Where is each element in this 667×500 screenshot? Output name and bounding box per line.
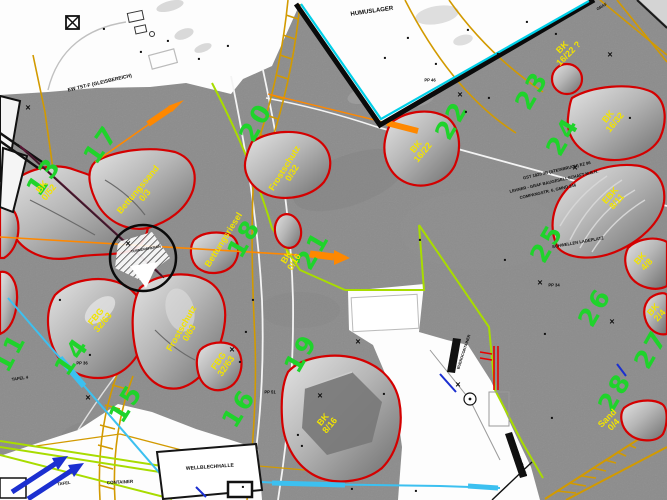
- site-plan-svg: [0, 0, 667, 500]
- stockpile-outline: [568, 86, 665, 160]
- stockpile-outline: [621, 401, 666, 441]
- stockpile-outline: [197, 343, 242, 391]
- site-plan-map: 1113141516171819202122232425262728BK 0/5…: [0, 0, 667, 500]
- stockpile-outline: [191, 233, 238, 274]
- stockpile-outline: [245, 132, 330, 198]
- crane-circle: [110, 225, 176, 291]
- stockpile-outline: [552, 64, 582, 94]
